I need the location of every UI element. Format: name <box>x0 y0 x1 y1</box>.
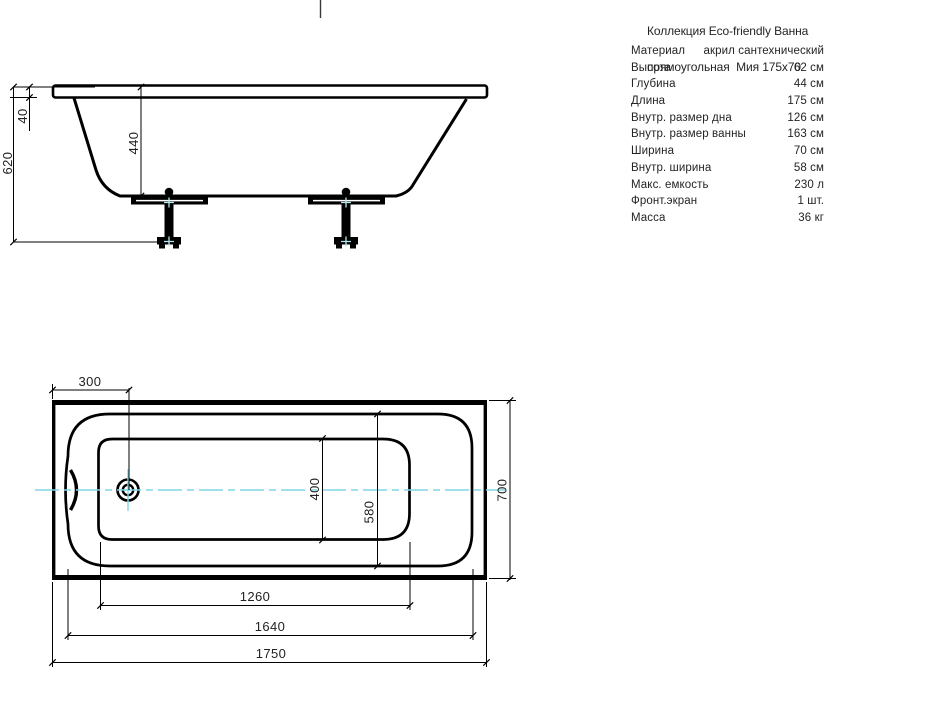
overflow-detail <box>71 470 77 510</box>
leg-assembly-left <box>131 188 208 249</box>
spec-row: Ширина 70 см <box>631 145 824 162</box>
dim-700-label: 700 <box>495 479 510 502</box>
spec-value: 163 см <box>787 128 824 140</box>
dim-440-label: 440 <box>126 132 141 155</box>
spec-table: Материал акрил сантехнический Высота 62 … <box>631 45 824 229</box>
spec-value: 175 см <box>787 95 824 107</box>
spec-label: Масса <box>631 212 666 224</box>
spec-row: Материал акрил сантехнический <box>631 45 824 62</box>
spec-value: 62 см <box>794 62 824 74</box>
spec-label: Внутр. размер ванны <box>631 128 746 140</box>
spec-label: Высота <box>631 62 671 74</box>
dim-1750-label: 1750 <box>256 646 287 661</box>
spec-row: Фронт.экран 1 шт. <box>631 195 824 212</box>
spec-label: Внутр. размер дна <box>631 112 732 124</box>
spec-value: 230 л <box>794 179 824 191</box>
dim-580-label: 580 <box>362 501 377 524</box>
spec-value: 58 см <box>794 162 824 174</box>
dim-1640-label: 1640 <box>255 619 286 634</box>
spec-label: Фронт.экран <box>631 195 697 207</box>
leg-assembly-right <box>308 188 385 249</box>
spec-row: Внутр. размер ванны 163 см <box>631 128 824 145</box>
spec-row: Макс. емкость 230 л <box>631 179 824 196</box>
tub-rim-side <box>53 86 487 98</box>
spec-label: Длина <box>631 95 665 107</box>
spec-row: Длина 175 см <box>631 95 824 112</box>
spec-value: 1 шт. <box>797 195 824 207</box>
spec-label: Ширина <box>631 145 674 157</box>
spec-row: Внутр. размер дна 126 см <box>631 112 824 129</box>
spec-value: акрил сантехнический <box>704 45 824 57</box>
spec-value: 36 кг <box>798 212 824 224</box>
dim-40-label: 40 <box>15 108 30 123</box>
spec-label: Глубина <box>631 78 676 90</box>
dim-400-label: 400 <box>307 478 322 501</box>
spec-value: 44 см <box>794 78 824 90</box>
product-title-line1: Коллекция Eco-friendly Ванна <box>647 25 808 37</box>
spec-row: Внутр. ширина 58 см <box>631 162 824 179</box>
dim-300-label: 300 <box>79 374 102 389</box>
dim-620-label: 620 <box>0 152 15 175</box>
spec-row: Глубина 44 см <box>631 78 824 95</box>
side-view: 620 40 440 <box>0 0 487 249</box>
spec-row: Высота 62 см <box>631 62 824 79</box>
page: 620 40 440 <box>0 0 925 704</box>
spec-value: 70 см <box>794 145 824 157</box>
spec-value: 126 см <box>787 112 824 124</box>
spec-label: Макс. емкость <box>631 179 709 191</box>
spec-label: Материал <box>631 45 685 57</box>
top-view: 300 400 580 700 1260 1640 <box>35 374 516 667</box>
spec-row: Масса 36 кг <box>631 212 824 229</box>
dim-1260-label: 1260 <box>240 589 271 604</box>
spec-label: Внутр. ширина <box>631 162 711 174</box>
